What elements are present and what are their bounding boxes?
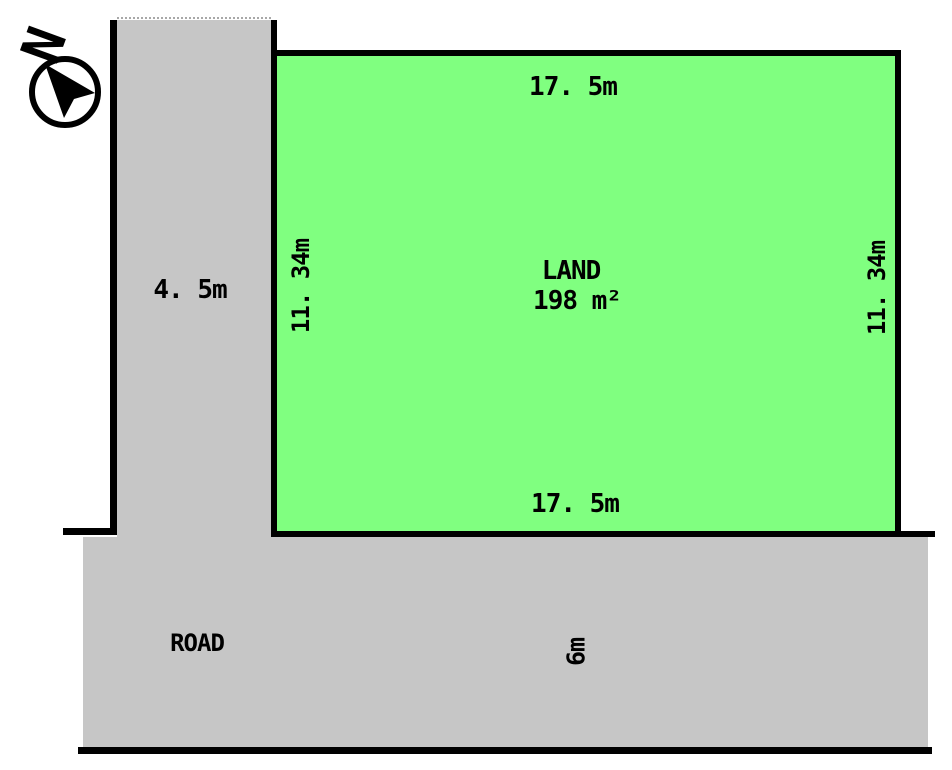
land-area-label: 198 m² [533, 288, 621, 314]
dimension-label-right: 11. 34m [865, 241, 889, 335]
north-compass: N [6, 8, 126, 138]
dimension-label-top: 17. 5m [529, 74, 617, 100]
land-name-label: LAND [542, 258, 601, 284]
road-name-label: ROAD [170, 631, 224, 655]
vertical-road-width-label: 4. 5m [153, 277, 226, 303]
dimension-label-left: 11. 34m [289, 239, 313, 333]
dimension-label-bottom: 17. 5m [531, 491, 619, 517]
horizontal-road-width-label: 6m [564, 638, 589, 666]
vertical-road-left-border [110, 20, 117, 535]
horizontal-road-top-border-left [63, 528, 117, 535]
horizontal-road-bottom-border [78, 747, 932, 754]
site-plan-diagram: N 17. 5m 17. 5m 11. 34m 11. 34m LAND 198… [0, 0, 952, 770]
vertical-road-top-edge [117, 17, 271, 19]
